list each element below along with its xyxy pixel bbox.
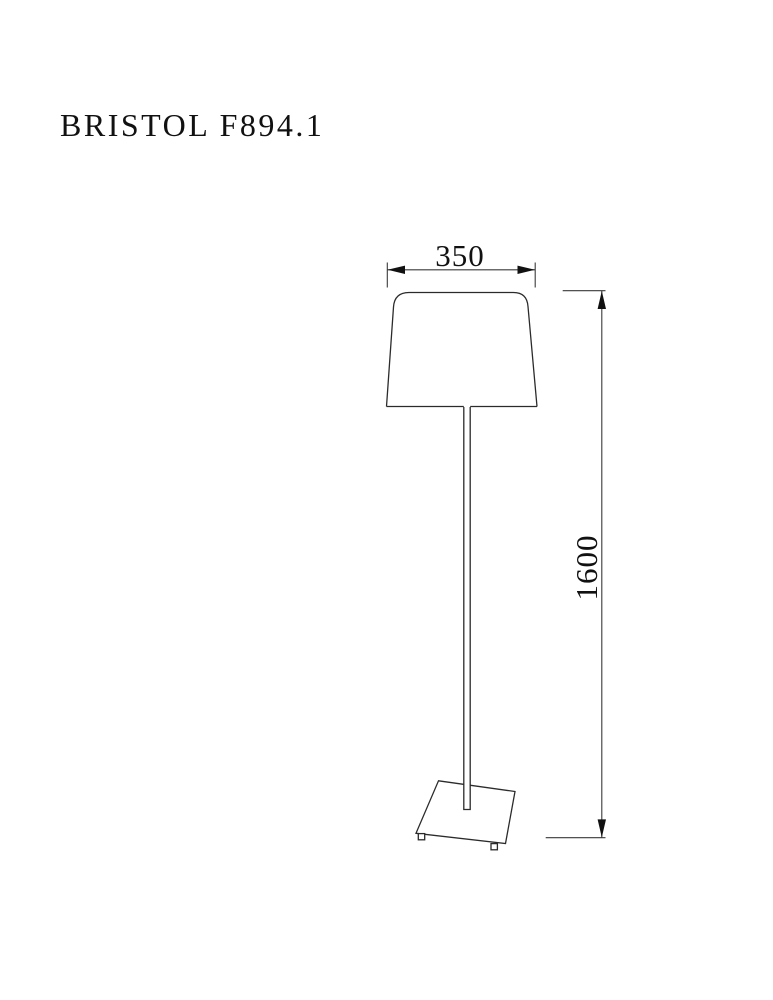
height-dim-arrow-down [598,819,606,837]
lamp-shade [387,293,538,407]
lamp-pole [464,407,470,810]
height-dimension-label: 1600 [569,535,604,601]
width-dimension-label: 350 [435,238,485,273]
height-dim-arrow-up [598,291,606,309]
base-foot-right [491,844,497,850]
lamp-technical-drawing: BRISTOL F894.1 350 [0,0,773,1000]
drawing-page: BRISTOL F894.1 350 [0,0,773,1000]
width-dimension: 350 [387,238,535,288]
height-dimension: 1600 [546,291,606,838]
width-dim-arrow-left [388,266,406,274]
drawing-title: BRISTOL F894.1 [60,107,324,143]
lamp-shade-outline [387,293,538,407]
width-dim-arrow-right [518,266,536,274]
base-foot-left [418,834,424,840]
